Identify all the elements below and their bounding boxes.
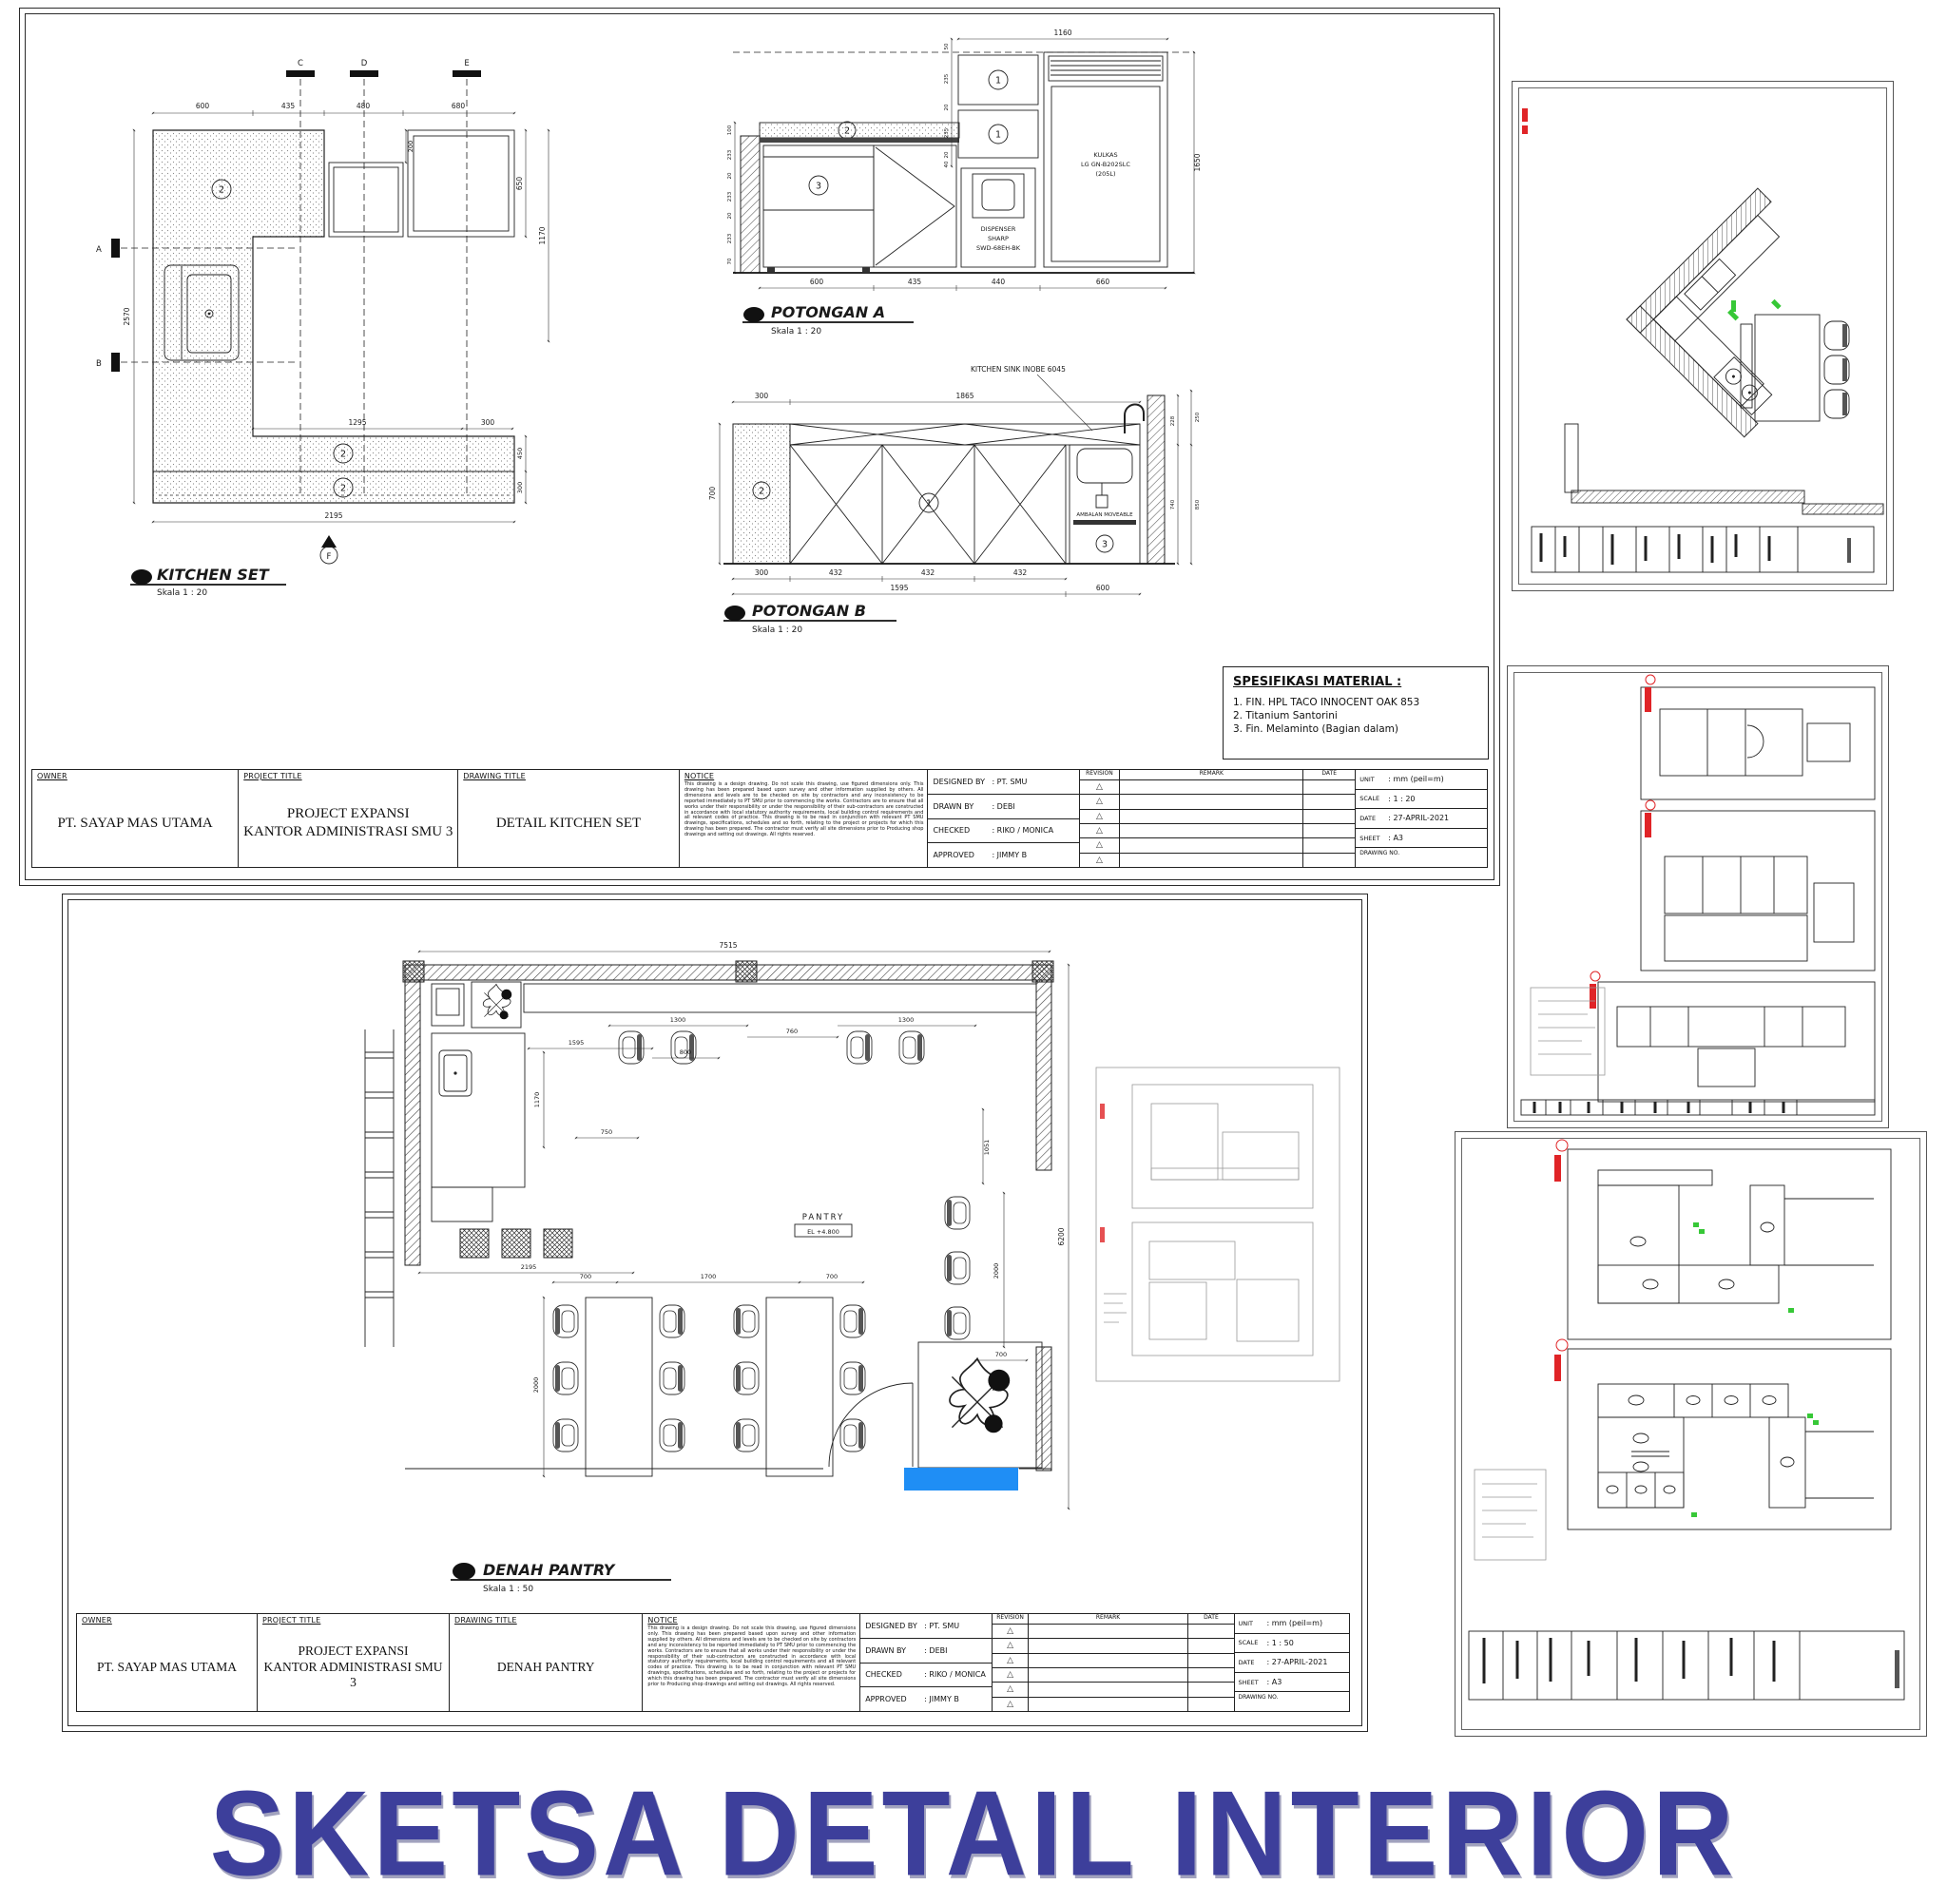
meta-column: UNIT: mm (peil=m) SCALE: 1 : 50 DATE: 27… bbox=[1235, 1614, 1349, 1711]
potongan-b-drawing: KITCHEN SINK INOBE 6045 300 1865 700 2 1 bbox=[657, 343, 1275, 638]
green-annotation-mark bbox=[1693, 1222, 1699, 1227]
meta-column: UNIT: mm (peil=m) SCALE: 1 : 20 DATE: 27… bbox=[1356, 770, 1487, 867]
dining-tables bbox=[553, 1298, 865, 1476]
owner-name: PT. SAYAP MAS UTAMA bbox=[79, 1625, 255, 1709]
project-title: PROJECT EXPANSIKANTOR ADMINISTRASI SMU 3 bbox=[241, 781, 455, 865]
potongan-b-caption: POTONGAN B Skala 1 : 20 bbox=[723, 602, 896, 635]
title-block: OWNERPT. SAYAP MAS UTAMA PROJECT TITLEPR… bbox=[76, 1613, 1350, 1712]
project-title-header: PROJECT TITLE bbox=[243, 772, 301, 780]
thumbnail-1-seating bbox=[1731, 300, 1849, 421]
green-annotation-mark bbox=[1771, 299, 1782, 310]
dim-label: 2570 bbox=[123, 307, 131, 325]
plan-top-dimensions: 600 435 480 680 bbox=[153, 102, 514, 116]
owner-name: PT. SAYAP MAS UTAMA bbox=[34, 781, 236, 865]
approval-rows: DESIGNED BY: PT. SMU DRAWN BY: DEBI CHEC… bbox=[860, 1614, 993, 1711]
countertop-section bbox=[790, 424, 1140, 445]
section-letter-e: E bbox=[464, 59, 469, 68]
drawing-scale: Skala 1 : 20 bbox=[771, 327, 821, 337]
dim-label: 432 bbox=[921, 568, 935, 577]
dim-label: 600 bbox=[196, 102, 210, 110]
notice-header: NOTICE bbox=[647, 1616, 677, 1625]
dim-label: 650 bbox=[515, 177, 524, 191]
dim-label: 680 bbox=[452, 102, 466, 110]
revision-triangle-icon: △ bbox=[993, 1639, 1027, 1653]
thumbnail-sheet-axon-plan bbox=[1512, 81, 1894, 591]
dim-label: 2195 bbox=[521, 1263, 537, 1271]
dim-label: 20 bbox=[727, 212, 733, 219]
section-letter-c: C bbox=[298, 59, 303, 68]
red-annotation-mark bbox=[1645, 687, 1651, 712]
dim-label: 300 bbox=[755, 392, 769, 400]
appliance-label: (205L) bbox=[1095, 170, 1115, 178]
spesifikasi-item: 3. Fin. Melaminto (Bagian dalam) bbox=[1233, 722, 1478, 736]
material-tag-2: 2 bbox=[340, 484, 346, 494]
thumbnail-sheet-elevations-1 bbox=[1507, 665, 1889, 1128]
spesifikasi-item: 2. Titanium Santorini bbox=[1233, 709, 1478, 722]
dim-label: 20 bbox=[944, 104, 950, 110]
spesifikasi-material-box: SPESIFIKASI MATERIAL : 1. FIN. HPL TACO … bbox=[1223, 666, 1489, 760]
section-letter-d: D bbox=[361, 59, 368, 68]
green-annotation-mark bbox=[1807, 1414, 1813, 1418]
dim-label: 660 bbox=[1096, 278, 1110, 286]
dim-label: 432 bbox=[829, 568, 843, 577]
date-column: DATE bbox=[1188, 1614, 1234, 1711]
dim-label: 432 bbox=[1013, 568, 1028, 577]
section-markers-top: C D E bbox=[286, 59, 481, 493]
dim-label: 20 bbox=[944, 151, 950, 158]
dim-label: 233 bbox=[727, 233, 733, 243]
revision-triangle-icon: △ bbox=[1080, 838, 1120, 853]
side-chairs bbox=[945, 1197, 970, 1339]
revision-triangle-icon: △ bbox=[1080, 780, 1120, 795]
section-letter-f: F bbox=[327, 552, 332, 562]
dim-label: 2000 bbox=[993, 1263, 1000, 1279]
dim-label: 1300 bbox=[670, 1016, 686, 1024]
green-annotation-mark bbox=[1788, 1308, 1794, 1313]
material-tag-3: 3 bbox=[1102, 540, 1108, 550]
revision-column: REVISION △ △ △ △ △ △ bbox=[1080, 770, 1121, 867]
material-tag-2: 2 bbox=[844, 126, 850, 137]
dim-label: 1865 bbox=[955, 392, 973, 400]
dim-label: 1595 bbox=[890, 584, 908, 592]
base-cabinet-section: 3 bbox=[763, 145, 874, 272]
room-name: PANTRY bbox=[802, 1213, 845, 1222]
green-annotation-mark bbox=[1699, 1229, 1705, 1234]
bar-stools bbox=[619, 1031, 924, 1064]
dim-label: 440 bbox=[992, 278, 1006, 286]
red-annotation-mark bbox=[1522, 108, 1528, 122]
dim-label: 700 bbox=[826, 1273, 838, 1280]
elevation-box-3 bbox=[1598, 982, 1875, 1102]
sink-note-label: KITCHEN SINK INOBE 6045 bbox=[971, 365, 1066, 374]
kitchen-set-caption: KITCHEN SET Skala 1 : 20 bbox=[130, 566, 286, 598]
dim-label: 750 bbox=[601, 1128, 612, 1136]
thumbnail-1-drawing bbox=[1513, 82, 1893, 590]
dim-label: 435 bbox=[281, 102, 296, 110]
drawing-scale: Skala 1 : 50 bbox=[483, 1585, 533, 1594]
project-title: PROJECT EXPANSIKANTOR ADMINISTRASI SMU 3 bbox=[260, 1625, 447, 1709]
material-tag-3: 3 bbox=[816, 182, 821, 192]
thumbnail-3-textblock bbox=[1475, 1470, 1546, 1560]
dim-label: 1170 bbox=[533, 1092, 541, 1108]
material-tag-1: 1 bbox=[926, 499, 932, 510]
potongan-a-bottom-dims: 600 435 440 660 bbox=[760, 278, 1166, 291]
revision-triangle-icon: △ bbox=[993, 1668, 1027, 1683]
drawing-caption: KITCHEN SET bbox=[157, 566, 270, 584]
thumbnail-3-drawing bbox=[1455, 1132, 1926, 1736]
material-tag-2: 2 bbox=[759, 487, 764, 497]
thumbnail-3-titlestrip bbox=[1469, 1631, 1904, 1700]
dim-label: 200 bbox=[407, 141, 414, 152]
green-annotation-mark bbox=[1813, 1420, 1819, 1425]
dim-label: 740 bbox=[1170, 499, 1176, 510]
dim-label: 450 bbox=[516, 448, 524, 459]
material-tag-1: 1 bbox=[995, 130, 1001, 141]
elevation-box-1 bbox=[1641, 687, 1875, 799]
inset-reference-drawings bbox=[1094, 1066, 1351, 1389]
material-tag-2: 2 bbox=[219, 185, 224, 196]
sink-cabinet-section: AMBALAN MOVEABLE 3 bbox=[1070, 445, 1140, 564]
owner-header: OWNER bbox=[82, 1616, 112, 1625]
revision-triangle-icon: △ bbox=[993, 1698, 1027, 1711]
red-annotation-mark bbox=[1554, 1155, 1561, 1182]
drawing-caption: POTONGAN A bbox=[771, 303, 885, 321]
dim-label: 700 bbox=[995, 1351, 1007, 1358]
page-title: SKETSA DETAIL INTERIOR bbox=[0, 1764, 1947, 1904]
dim-label: 50 bbox=[944, 43, 950, 49]
potongan-a-caption: POTONGAN A Skala 1 : 20 bbox=[742, 303, 914, 337]
dim-label: 6200 bbox=[1057, 1227, 1066, 1245]
dim-label: 1160 bbox=[1053, 29, 1071, 37]
spesifikasi-item: 1. FIN. HPL TACO INNOCENT OAK 853 bbox=[1233, 696, 1478, 709]
owner-header: OWNER bbox=[37, 772, 67, 780]
dim-label: 70 bbox=[727, 258, 733, 264]
dim-label: 700 bbox=[708, 487, 717, 501]
elevation-box-upper bbox=[1568, 1149, 1891, 1339]
thumbnail-1-titlestrip bbox=[1532, 527, 1874, 572]
appliance-label: KULKAS bbox=[1093, 151, 1117, 159]
red-annotation-mark bbox=[1554, 1355, 1561, 1381]
drawing-caption: DENAH PANTRY bbox=[483, 1561, 616, 1579]
dim-label: 250 bbox=[1195, 412, 1201, 422]
dim-label: 1170 bbox=[538, 226, 547, 244]
approval-rows: DESIGNED BY: PT. SMU DRAWN BY: DEBI CHEC… bbox=[928, 770, 1079, 867]
section-marker-f: F bbox=[320, 535, 337, 564]
room-elevation: EL +4.800 bbox=[807, 1228, 839, 1236]
sketsa-detail-interior-page: { "colors": { "title_navy": "#3d3f9b", "… bbox=[0, 0, 1947, 1890]
sheet-denah-pantry: 7515 bbox=[62, 894, 1368, 1732]
revision-triangle-icon: △ bbox=[993, 1625, 1027, 1639]
dim-label: 233 bbox=[727, 191, 733, 202]
drawing-scale: Skala 1 : 20 bbox=[752, 625, 802, 635]
notice-header: NOTICE bbox=[684, 772, 714, 780]
project-title-header: PROJECT TITLE bbox=[262, 1616, 320, 1625]
revision-triangle-icon: △ bbox=[993, 1654, 1027, 1668]
dim-label: 228 bbox=[1170, 415, 1176, 426]
drawing-title: DENAH PANTRY bbox=[452, 1625, 640, 1709]
kitchen-counter-plan: 2 2 2 bbox=[153, 130, 514, 503]
material-tag-2: 2 bbox=[340, 450, 346, 460]
dim-label: 300 bbox=[481, 418, 495, 427]
revision-triangle-icon: △ bbox=[993, 1683, 1027, 1697]
dim-label: 760 bbox=[786, 1028, 798, 1035]
drawing-scale: Skala 1 : 20 bbox=[157, 588, 207, 598]
appliance-label: DISPENSER bbox=[981, 225, 1016, 233]
section-letter-a: A bbox=[96, 245, 102, 255]
kitchen-set-plan-drawing: C D E 600 435 480 680 2 2 2 bbox=[58, 47, 590, 598]
potongan-a-drawing: 1160 1650 2 3 1 1 bbox=[676, 24, 1246, 347]
dim-label: 700 bbox=[580, 1273, 591, 1280]
dim-label: 20 bbox=[727, 172, 733, 179]
red-annotation-mark bbox=[1645, 813, 1651, 837]
planter-box bbox=[918, 1342, 1042, 1468]
appliance-label: SHARP bbox=[988, 235, 1009, 242]
dim-label: 2000 bbox=[532, 1377, 540, 1394]
dim-label: 2195 bbox=[324, 511, 342, 520]
title-block: OWNERPT. SAYAP MAS UTAMA PROJECT TITLEPR… bbox=[31, 769, 1488, 868]
dim-label: 1051 bbox=[983, 1140, 991, 1156]
base-cabinet-run: 1 bbox=[790, 445, 1066, 564]
spesifikasi-title: SPESIFIKASI MATERIAL : bbox=[1233, 675, 1478, 689]
appliance-label: SWD-68EH-BK bbox=[976, 244, 1021, 252]
dim-label: 100 bbox=[727, 125, 733, 135]
upper-cabinets-section: 1 1 bbox=[958, 55, 1038, 158]
dim-label: 235 bbox=[944, 73, 950, 84]
dim-label: 600 bbox=[810, 278, 824, 286]
dim-label: 7515 bbox=[719, 941, 737, 950]
dim-label: 1700 bbox=[701, 1273, 717, 1280]
notice-text: This drawing is a design drawing. Do not… bbox=[647, 1626, 856, 1709]
revision-triangle-icon: △ bbox=[1080, 810, 1120, 824]
revision-triangle-icon: △ bbox=[1080, 795, 1120, 809]
room-label: PANTRY EL +4.800 bbox=[795, 1213, 852, 1237]
dispenser-unit: DISPENSER SHARP SWD-68EH-BK bbox=[961, 168, 1035, 267]
dim-label: 300 bbox=[516, 482, 524, 493]
dim-label: 850 bbox=[1195, 499, 1201, 510]
elevation-box-lower bbox=[1568, 1349, 1891, 1529]
dim-label: 235 bbox=[944, 127, 950, 138]
dim-label: 600 bbox=[1096, 584, 1110, 592]
dim-label: 1595 bbox=[569, 1039, 585, 1047]
dim-label: 1295 bbox=[348, 418, 366, 427]
sheet-detail-kitchen-set: C D E 600 435 480 680 2 2 2 bbox=[19, 8, 1500, 886]
dim-label: 40 bbox=[944, 161, 950, 167]
drawing-title: DETAIL KITCHEN SET bbox=[460, 781, 677, 865]
dim-label: 800 bbox=[680, 1048, 691, 1056]
material-tag-1: 1 bbox=[995, 76, 1001, 87]
green-annotation-mark bbox=[1731, 300, 1736, 312]
elevation-box-2 bbox=[1641, 811, 1875, 971]
potongan-b-right-dims: 228 250 740 850 bbox=[1170, 391, 1201, 564]
revision-column: REVISION △ △ △ △ △ △ bbox=[993, 1614, 1028, 1711]
green-annotation-mark bbox=[1691, 1512, 1697, 1517]
denah-pantry-caption: DENAH PANTRY Skala 1 : 50 bbox=[443, 1550, 747, 1598]
island-counter bbox=[432, 1033, 525, 1221]
dim-label: 1300 bbox=[898, 1016, 915, 1024]
thumbnail-2-textblock bbox=[1531, 988, 1605, 1075]
thumbnail-1-lower-walls bbox=[1565, 424, 1883, 514]
thumbnail-sheet-elevations-2 bbox=[1455, 1131, 1927, 1737]
revision-triangle-icon: △ bbox=[1080, 824, 1120, 838]
appliance-label: LG GN-B202SLC bbox=[1081, 161, 1130, 168]
dim-label: 1650 bbox=[1193, 153, 1202, 171]
dim-label: 233 bbox=[727, 149, 733, 160]
dim-label: 300 bbox=[755, 568, 769, 577]
potongan-b-bottom-dims: 300 432 432 432 1595 600 bbox=[733, 568, 1140, 597]
drawing-caption: POTONGAN B bbox=[752, 602, 866, 620]
section-letter-b: B bbox=[96, 359, 102, 369]
red-annotation-mark bbox=[1522, 125, 1528, 134]
notice-text: This drawing is a design drawing. Do not… bbox=[684, 782, 924, 865]
ambalan-label: AMBALAN MOVEABLE bbox=[1076, 512, 1133, 518]
potongan-a-left-dims: 50 235 20 235 20 40 100 233 20 233 20 23… bbox=[727, 39, 952, 273]
remark-column: REMARK bbox=[1029, 1614, 1189, 1711]
dim-label: 435 bbox=[908, 278, 922, 286]
blue-mat bbox=[904, 1468, 1018, 1491]
denah-pantry-drawing: 7515 bbox=[348, 938, 1089, 1547]
drawing-title-header: DRAWING TITLE bbox=[463, 772, 526, 780]
refrigerator-unit: KULKAS LG GN-B202SLC (205L) bbox=[1044, 52, 1167, 267]
revision-triangle-icon: △ bbox=[1080, 854, 1120, 867]
potongan-b-top-dims: 300 1865 bbox=[733, 392, 1140, 405]
rotated-kitchen-plan bbox=[1627, 188, 1876, 437]
drawing-title-header: DRAWING TITLE bbox=[454, 1616, 517, 1625]
thumbnail-2-drawing bbox=[1508, 666, 1888, 1127]
date-column: DATE bbox=[1303, 770, 1356, 867]
dim-label: 480 bbox=[357, 102, 371, 110]
remark-column: REMARK bbox=[1120, 770, 1303, 867]
